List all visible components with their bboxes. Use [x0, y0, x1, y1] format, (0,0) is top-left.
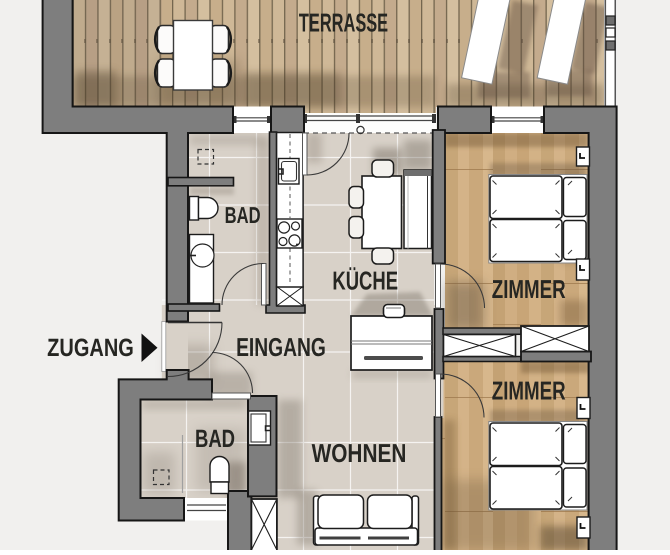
- svg-text:ZIMMER: ZIMMER: [492, 274, 566, 304]
- svg-text:BAD: BAD: [195, 425, 235, 453]
- svg-text:EINGANG: EINGANG: [236, 332, 326, 362]
- svg-text:ZUGANG: ZUGANG: [47, 334, 134, 362]
- svg-text:BAD: BAD: [225, 202, 261, 228]
- svg-text:TERRASSE: TERRASSE: [299, 8, 388, 38]
- svg-text:WOHNEN: WOHNEN: [312, 438, 407, 468]
- svg-text:ZIMMER: ZIMMER: [492, 376, 566, 406]
- svg-text:KÜCHE: KÜCHE: [332, 266, 398, 296]
